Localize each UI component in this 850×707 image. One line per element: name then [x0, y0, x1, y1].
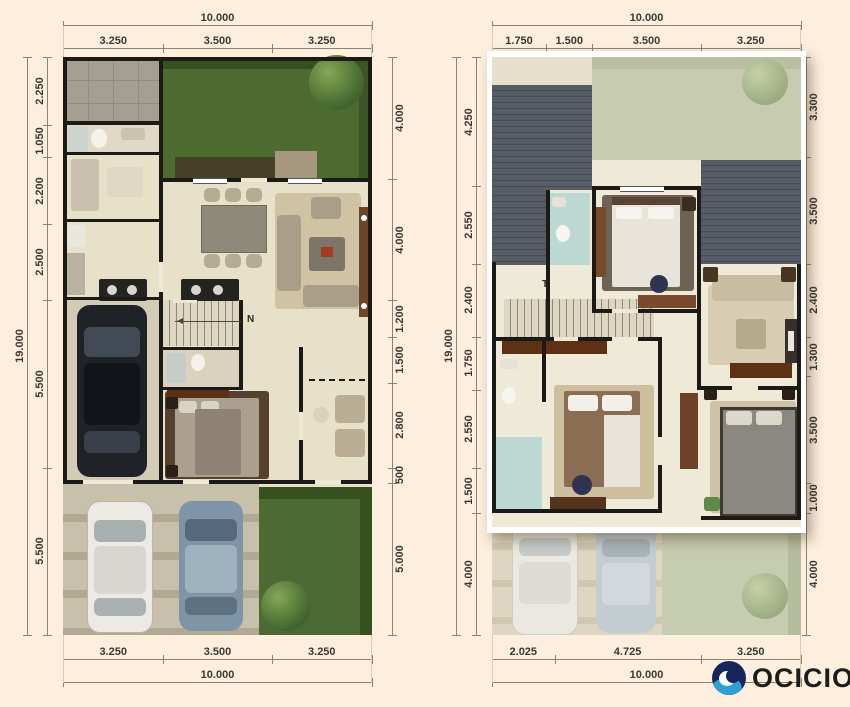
roof-left	[492, 85, 592, 190]
roof-right	[701, 160, 801, 264]
ground-floor-plan: N	[63, 57, 372, 635]
toilet	[556, 225, 570, 242]
wall	[492, 509, 662, 513]
faded-car-white	[512, 523, 578, 635]
dining-table	[201, 205, 267, 253]
upper-garden-tree	[742, 59, 788, 105]
wall	[697, 186, 701, 390]
door-opening	[554, 337, 578, 341]
dining-chair	[225, 254, 241, 268]
tv-screen	[788, 331, 794, 351]
wall	[658, 341, 662, 513]
media-cabinet	[359, 207, 368, 317]
door-opening	[173, 300, 197, 303]
rear-garden-tree	[261, 581, 311, 631]
dining-chair	[246, 188, 262, 202]
dim-upper-right-segments: 3.3003.5002.4001.3003.5001.0004.000	[806, 57, 822, 635]
sink	[500, 359, 518, 369]
wall	[701, 516, 801, 520]
dining-chair	[204, 188, 220, 202]
door-opening	[315, 480, 341, 484]
kitchen-counter-left	[67, 253, 85, 295]
wall	[63, 297, 163, 300]
toilet	[91, 129, 107, 148]
bed-blanket	[195, 409, 241, 475]
wall	[63, 57, 372, 61]
wall	[63, 121, 163, 125]
dim-upper-left-segments: 4.2502.5502.4001.7502.5501.5004.000	[461, 57, 477, 635]
swirl-circle-icon	[712, 661, 746, 695]
pillow	[648, 207, 674, 219]
dining-chair	[225, 188, 241, 202]
bedroom-c-wardrobe	[730, 363, 792, 378]
pillow	[756, 411, 782, 425]
side-table	[107, 167, 143, 197]
dim-upper-top-total: 10.000	[492, 10, 801, 26]
dim-upper-left-total: 19.000	[441, 57, 457, 635]
terrace-chair	[335, 395, 365, 423]
door-opening	[612, 309, 638, 313]
side-table	[703, 267, 718, 282]
lounge-seat	[71, 159, 99, 211]
dim-ground-right-segments: 4.0004.0001.2001.5002.8005005.000	[392, 57, 408, 635]
dim-ground-bottom-total: 10.000	[63, 667, 372, 683]
faded-car-blue	[596, 525, 656, 633]
roof-left-lower	[492, 190, 546, 265]
bedroom-a-headboard	[612, 197, 680, 205]
terrace-chair	[335, 429, 365, 457]
carport-car-white	[87, 501, 153, 633]
living-armchair	[311, 197, 341, 219]
faded-rear-garden	[662, 517, 801, 635]
wall	[368, 57, 372, 484]
north-arrow-icon	[175, 321, 241, 322]
kitchen-island	[181, 279, 239, 301]
ocicio-logo: OCICIO	[712, 661, 850, 695]
stove-burner	[191, 285, 201, 295]
window	[620, 186, 664, 192]
front-terrace-paving	[63, 57, 163, 125]
living-sofa-bottom	[303, 285, 359, 307]
pillow	[602, 395, 632, 411]
wall	[546, 190, 550, 340]
bedside-table	[682, 197, 696, 211]
door-opening	[658, 437, 662, 465]
door-opening	[159, 262, 163, 292]
stove-burner	[213, 285, 223, 295]
dining-chair	[204, 254, 220, 268]
dining-chair	[246, 254, 262, 268]
bedroom-a-desk	[638, 295, 696, 308]
bedside-speaker	[166, 465, 178, 477]
north-label: N	[247, 314, 254, 325]
extension-line	[492, 635, 493, 683]
dim-ground-top-total: 10.000	[63, 10, 372, 26]
stove-burner	[107, 285, 117, 295]
desk-chair	[572, 475, 592, 495]
sink-counter	[121, 128, 145, 140]
dim-upper-bottom-segments: 2.0254.7253.250	[492, 644, 801, 660]
hall-wardrobe	[502, 341, 607, 354]
wall	[492, 262, 496, 513]
floor-plan-sheet: 10.000 3.2503.5003.250 19.000 2.2501.050…	[0, 0, 850, 707]
stove-burner	[127, 285, 137, 295]
door-opening	[241, 178, 267, 182]
wall	[63, 219, 159, 222]
shower	[166, 353, 186, 383]
bathroom-b-floor	[496, 437, 542, 509]
carport-car-blue	[179, 501, 243, 631]
dim-ground-left-segments: 2.2501.0502.2002.5005.5005.500	[32, 57, 48, 635]
bedside-speaker	[166, 397, 178, 409]
garden-tree	[309, 55, 364, 110]
extension-line	[63, 26, 64, 57]
dim-ground-top-segments: 3.2503.5003.250	[63, 33, 372, 49]
faded-hedge	[788, 517, 801, 635]
wall	[239, 300, 243, 390]
extension-line	[371, 26, 372, 57]
tv-room-ottoman	[736, 319, 766, 349]
toilet	[191, 354, 205, 371]
toilet	[502, 387, 516, 404]
wall	[797, 264, 801, 520]
table-decor	[321, 247, 333, 257]
rear-garden-hedge	[259, 487, 372, 499]
cabinet-knob	[361, 303, 367, 309]
extension-line	[371, 635, 372, 683]
wall	[163, 387, 243, 390]
rear-garden-hedge-right	[360, 487, 372, 635]
pillow	[568, 395, 598, 411]
pillow	[616, 207, 642, 219]
desk-chair	[650, 275, 668, 293]
door-opening	[732, 386, 758, 390]
plant	[704, 497, 720, 511]
garage-car	[77, 305, 147, 477]
door-opening	[183, 480, 209, 484]
dim-ground-bottom-segments: 3.2503.5003.250	[63, 644, 372, 660]
cabinet-knob	[361, 215, 367, 221]
dim-upper-top-segments: 1.7501.5003.5003.250	[492, 33, 801, 49]
sink	[552, 197, 566, 207]
wall	[592, 186, 596, 312]
hall-cabinet	[680, 393, 698, 469]
wall	[592, 309, 701, 313]
bed-sheet	[604, 415, 640, 487]
dim-ground-left-total: 19.000	[12, 57, 28, 635]
garage-door-opening	[83, 480, 133, 484]
terrace-table	[313, 407, 329, 423]
extension-line	[63, 635, 64, 683]
window	[193, 178, 227, 184]
terrace-dashed-line	[309, 379, 365, 381]
wall	[163, 347, 243, 350]
upper-staircase	[504, 299, 654, 337]
upper-floor-plan: T	[492, 57, 801, 635]
upper-terrace-strip	[492, 57, 592, 85]
door-opening	[612, 337, 638, 341]
bedroom-a-wardrobe	[595, 207, 606, 277]
wall	[63, 152, 159, 155]
side-table	[781, 267, 796, 282]
door-opening	[299, 412, 303, 440]
wall	[542, 340, 546, 402]
pillow	[726, 411, 752, 425]
faded-tree	[742, 573, 788, 619]
living-sofa-left	[277, 215, 301, 291]
ocicio-logo-text: OCICIO	[752, 663, 850, 694]
window	[288, 178, 322, 184]
stair-label: T	[542, 279, 548, 290]
wall	[159, 300, 163, 482]
shower	[68, 126, 88, 152]
refrigerator	[67, 225, 85, 247]
